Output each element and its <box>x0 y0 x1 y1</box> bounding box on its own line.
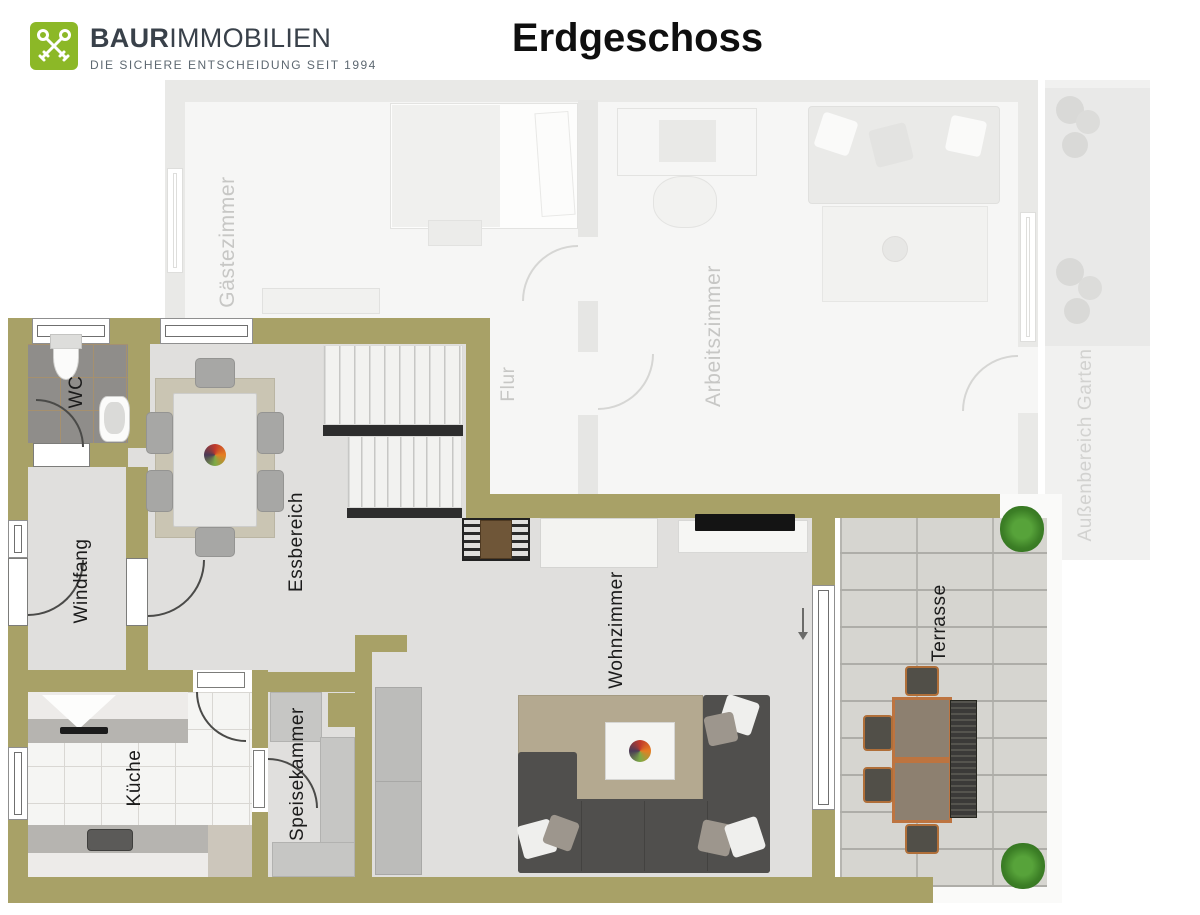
room-label-gaestezimmer: Gästezimmer <box>216 176 240 307</box>
guest-bed-pillow <box>534 111 575 217</box>
stairs-lower-flight <box>347 436 462 508</box>
garden-bush <box>1076 110 1100 134</box>
wall <box>8 877 933 903</box>
faded-door-gap <box>578 352 598 415</box>
terrace-table <box>892 697 952 760</box>
office-sofa-pillow <box>945 115 988 158</box>
dining-chair <box>146 470 173 512</box>
terrace-curb-bottom <box>933 887 1062 903</box>
room-label-essbereich: Essbereich <box>286 492 308 592</box>
terrace-table <box>892 760 952 823</box>
floorplan-page: BAURIMMOBILIEN DIE SICHERE ENTSCHEIDUNG … <box>0 0 1200 915</box>
terrace-chair <box>905 666 939 696</box>
guest-rug <box>428 220 482 246</box>
wall-pillar <box>328 693 357 727</box>
sofa-seam <box>644 801 645 871</box>
office-bowl <box>882 236 908 262</box>
wall <box>812 518 835 585</box>
window-gaestezimmer <box>167 168 183 273</box>
room-label-speisekammer: Speisekammer <box>287 707 309 841</box>
wc-sink-basin <box>104 402 125 434</box>
terrace-chair <box>863 715 893 751</box>
terrace-plant <box>1000 506 1044 552</box>
window-arbeitszimmer <box>1020 212 1036 342</box>
room-label-flur: Flur <box>498 366 520 401</box>
wall <box>812 810 835 877</box>
sofa-seam <box>581 801 582 871</box>
guest-dresser <box>262 288 380 314</box>
garden-bush <box>1064 298 1090 324</box>
room-label-aussenbereich-garten: Außenbereich Garten <box>1075 348 1097 541</box>
wall <box>355 635 407 652</box>
kitchen-lower-cabinets <box>28 853 208 877</box>
sliding-door-arrow <box>802 608 804 632</box>
room-label-wohnzimmer: Wohnzimmer <box>606 571 628 689</box>
faded-wall-gaestezimmer <box>578 100 598 344</box>
windfang-door <box>126 558 148 626</box>
sideboard <box>540 518 658 568</box>
guest-bed-blanket <box>392 105 500 227</box>
faded-door-gap <box>1018 347 1038 413</box>
toilet-tank <box>50 334 82 349</box>
office-keyboard <box>659 120 716 162</box>
terrace-bench <box>950 700 977 818</box>
stairs-upper-flight <box>323 345 463 425</box>
wall <box>355 635 372 877</box>
wall <box>252 672 372 692</box>
kitchen-sink <box>87 829 133 851</box>
room-label-terrasse: Terrasse <box>929 584 951 662</box>
stairs-bottom-bar <box>347 508 462 518</box>
window-windfang <box>8 520 28 558</box>
wall <box>466 344 490 494</box>
sliding-door-terrace <box>812 585 835 810</box>
terrace-plant <box>1001 843 1045 889</box>
pantry-shelf <box>272 842 355 877</box>
dining-chair <box>146 412 173 454</box>
terrace-chair <box>905 824 939 854</box>
garden-bush <box>1078 276 1102 300</box>
kitchen-fridge <box>208 825 252 877</box>
garden-bush <box>1062 132 1088 158</box>
kitchen-cooktop <box>60 727 108 734</box>
pantry-door <box>253 750 265 808</box>
dining-chair <box>195 527 235 557</box>
room-label-kueche: Küche <box>124 750 146 807</box>
sliding-door-arrow-head <box>798 632 808 640</box>
terrace-chair <box>863 767 893 803</box>
kitchen-door <box>197 672 245 688</box>
stairs-landing-bar <box>323 425 463 436</box>
sofa-pillow <box>703 711 739 747</box>
dining-chair <box>257 470 284 512</box>
dining-chair <box>257 412 284 454</box>
coffee-table-bowl <box>629 740 651 762</box>
faded-door-gap <box>578 237 598 301</box>
wall <box>8 670 193 692</box>
pantry-shelf <box>320 737 355 843</box>
terrace-curb-right <box>1047 518 1062 887</box>
dining-chair <box>195 358 235 388</box>
entrance-door <box>8 558 28 626</box>
room-label-arbeitszimmer: Arbeitszimmer <box>702 265 726 407</box>
firewood-logs <box>480 520 512 559</box>
window-essbereich <box>160 318 253 344</box>
room-label-windfang: Windfang <box>71 538 93 623</box>
kitchen-hood <box>42 695 116 729</box>
room-label-wc: WC <box>66 376 88 409</box>
wardrobe-divider <box>376 781 421 782</box>
office-chair <box>653 176 717 228</box>
tv <box>695 514 795 531</box>
fruit-bowl <box>204 444 226 466</box>
faded-wall-top <box>165 80 1038 102</box>
window-kitchen <box>8 747 28 820</box>
